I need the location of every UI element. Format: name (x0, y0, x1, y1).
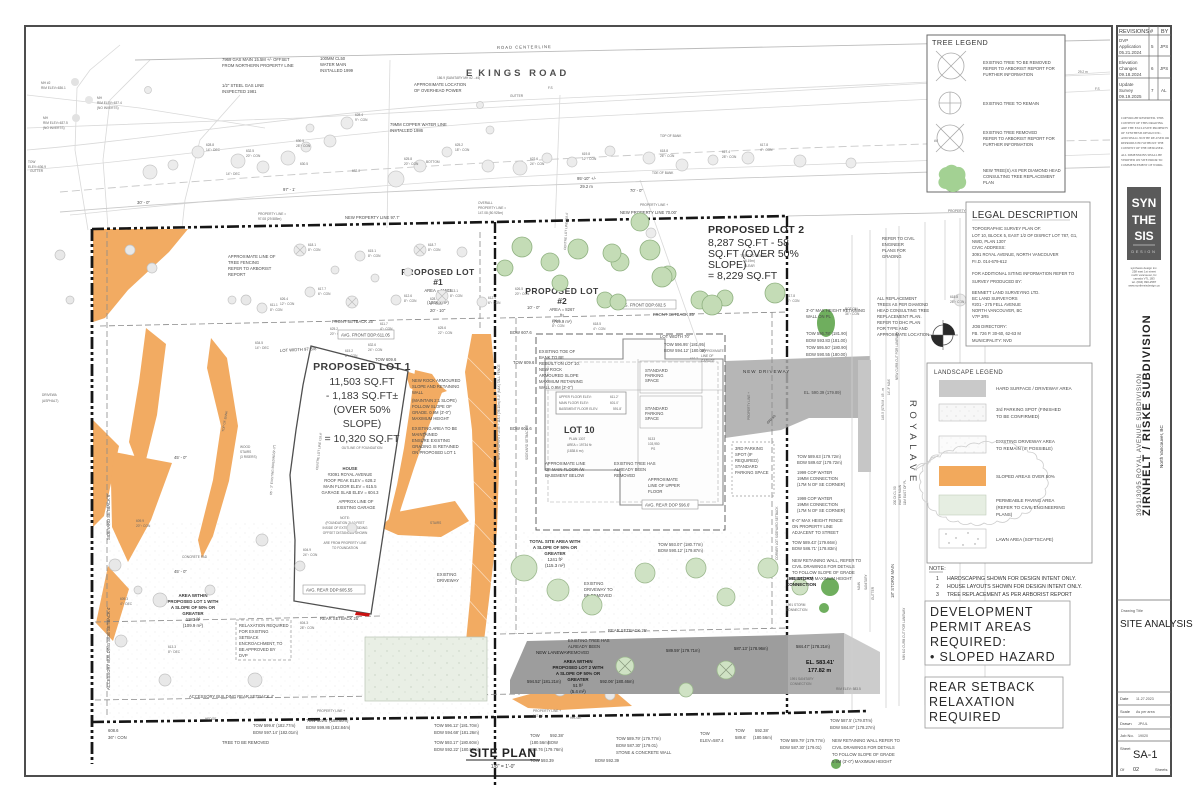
svg-text:GUTTER: GUTTER (30, 169, 44, 173)
svg-text:6"↑ CON: 6"↑ CON (488, 301, 501, 305)
svg-text:A SLOPE OF 50% OR: A SLOPE OF 50% OR (556, 671, 601, 676)
svg-text:618.1: 618.1 (308, 243, 316, 247)
svg-text:VERIFIED ON SITE PRIOR TO: VERIFIED ON SITE PRIOR TO (1121, 158, 1163, 162)
svg-text:8"↑ CON: 8"↑ CON (308, 248, 321, 252)
svg-text:ENSURE EXISTING: ENSURE EXISTING (412, 438, 450, 443)
svg-text:1/8" = 1'-0": 1/8" = 1'-0" (491, 764, 516, 770)
svg-text:186.9 (SANITARY MH #2 - #4): 186.9 (SANITARY MH #2 - #4) (437, 76, 480, 80)
svg-text:• SLOPED HAZARD: • SLOPED HAZARD (930, 650, 1055, 664)
svg-text:GUTTER: GUTTER (510, 94, 524, 98)
svg-text:12"↑ CON: 12"↑ CON (582, 157, 597, 161)
svg-text:LOT 10: LOT 10 (564, 425, 595, 435)
svg-text:MIN 6-0 CURB CUT FOR LANEWAY: MIN 6-0 CURB CUT FOR LANEWAY (902, 607, 906, 660)
svg-text:MAXIMUM RETAINING: MAXIMUM RETAINING (539, 379, 583, 384)
svg-text:APPROXIMATE LOCATION: APPROXIMATE LOCATION (877, 332, 929, 337)
svg-text:REMOVED: REMOVED (568, 650, 589, 655)
svg-text:A SLOPE OF 50% OR: A SLOPE OF 50% OR (171, 605, 216, 610)
svg-text:3091 ROYAL AVENUE, NORTH VANCO: 3091 ROYAL AVENUE, NORTH VANCOUVER (972, 252, 1059, 257)
svg-text:TREES AS PER DIAMOND: TREES AS PER DIAMOND (877, 302, 928, 307)
svg-text:0.9M (3'-0") MAXIMUM HEIGHT: 0.9M (3'-0") MAXIMUM HEIGHT (832, 759, 892, 764)
svg-text:www.synthesisdesign.ca: www.synthesisdesign.ca (1128, 284, 1160, 288)
svg-text:632.5: 632.5 (246, 149, 254, 153)
svg-text:36"↑ CON: 36"↑ CON (108, 735, 127, 740)
svg-text:AL: AL (1161, 88, 1167, 93)
svg-text:634.5: 634.5 (255, 341, 263, 345)
svg-text:19MM CONNECTION: 19MM CONNECTION (797, 476, 838, 481)
svg-text:14'-3" MAX: 14'-3" MAX (887, 378, 891, 395)
svg-text:14"↑ DEC: 14"↑ DEC (226, 172, 241, 176)
svg-text:1: 1 (936, 576, 939, 582)
svg-text:587.13' (178.96m): 587.13' (178.96m) (734, 646, 768, 651)
svg-text:1/2" STEEL GAS LINE: 1/2" STEEL GAS LINE (222, 83, 264, 88)
svg-text:Drawing Title: Drawing Title (1121, 609, 1143, 613)
svg-text:SIDEYARD SETBACK 6': SIDEYARD SETBACK 6' (525, 425, 529, 460)
svg-text:SA-1: SA-1 (1133, 749, 1157, 761)
svg-text:618.5: 618.5 (593, 322, 601, 326)
svg-text:CIVIC ADDRESS:: CIVIC ADDRESS: (972, 245, 1006, 250)
svg-text:NEW PROPERTY LINE + 118.4 (36.: NEW PROPERTY LINE + 118.4 (36.10m) 8'-0"… (497, 364, 501, 460)
svg-text:0.9M (3'-0") MAXIMUM HEIGHT: 0.9M (3'-0") MAXIMUM HEIGHT (792, 576, 852, 581)
svg-text:618.7: 618.7 (428, 243, 436, 247)
svg-text:PLAN 1307: PLAN 1307 (569, 437, 586, 441)
svg-text:REBUILT ON LOT 10.: REBUILT ON LOT 10. (539, 361, 580, 366)
svg-text:TOW: TOW (28, 160, 35, 164)
svg-text:TOW 602.3' (183.60m): TOW 602.3' (183.60m) (306, 718, 349, 723)
svg-text:8"↑ CON: 8"↑ CON (270, 308, 283, 312)
svg-text:(OVER 50%: (OVER 50% (333, 404, 390, 416)
svg-text:30' - 0": 30' - 0" (137, 200, 151, 205)
svg-text:- 1,183 SQ.FT±: - 1,183 SQ.FT± (326, 390, 399, 402)
svg-text:WATER MAIN: WATER MAIN (320, 62, 346, 67)
svg-text:DRIVEWAY TO: DRIVEWAY TO (584, 587, 613, 592)
svg-text:HARD SURFACE / DRIVEWAY AREA: HARD SURFACE / DRIVEWAY AREA (996, 386, 1072, 391)
svg-text:MAIN FLOOR ELEV:: MAIN FLOOR ELEV: (559, 401, 589, 405)
svg-text:19020: 19020 (1138, 734, 1148, 738)
svg-text:APPROXIMATE LOCATION: APPROXIMATE LOCATION (414, 82, 466, 87)
svg-text:TREE REPLACEMENT AS PER ARBORI: TREE REPLACEMENT AS PER ARBORIST REPORT (947, 592, 1073, 598)
svg-text:Update: Update (1119, 82, 1134, 87)
svg-text:BOW 592.39: BOW 592.39 (595, 758, 620, 763)
svg-text:(5.4 m²): (5.4 m²) (570, 689, 586, 694)
svg-text:ACCESSORY BUILDING SIDE SETBAC: ACCESSORY BUILDING SIDE SETBACK 4' (106, 607, 111, 690)
svg-text:NOTE:: NOTE: (929, 566, 946, 572)
svg-text:SETBACK: SETBACK (239, 635, 259, 640)
svg-text:STAIRS: STAIRS (430, 521, 441, 525)
svg-text:8"↑ CON: 8"↑ CON (368, 254, 381, 258)
svg-text:BOW 589.63' (179.72m): BOW 589.63' (179.72m) (797, 460, 843, 465)
svg-text:8"↑ CON: 8"↑ CON (450, 294, 463, 298)
svg-text:22"↑ CON: 22"↑ CON (438, 331, 453, 335)
svg-text:REMOVED: REMOVED (614, 473, 635, 478)
svg-text:NEW PROPERTY LINE 97.7': NEW PROPERTY LINE 97.7' (345, 215, 400, 220)
svg-text:CONNECTION: CONNECTION (786, 582, 816, 587)
svg-text:EXISTING DRIVEWAY AREA: EXISTING DRIVEWAY AREA (996, 439, 1055, 444)
svg-text:SPACE: SPACE (645, 378, 659, 383)
svg-text:609.3: 609.3 (120, 597, 128, 601)
svg-text:DVP: DVP (1119, 38, 1128, 43)
svg-text:FOR EXISTING: FOR EXISTING (239, 629, 269, 634)
svg-text:STAIRS: STAIRS (240, 450, 251, 454)
svg-text:INSTALLED 1999: INSTALLED 1999 (320, 68, 354, 73)
svg-text:617.4: 617.4 (722, 150, 730, 154)
svg-text:608.6: 608.6 (108, 728, 119, 733)
svg-text:AREA = 19734 ft²: AREA = 19734 ft² (567, 443, 592, 447)
svg-text:EXISTING TREE TO REMAIN: EXISTING TREE TO REMAIN (983, 101, 1039, 106)
svg-text:625.8: 625.8 (404, 157, 412, 161)
svg-text:REAR SETBACK 25': REAR SETBACK 25' (320, 616, 359, 621)
svg-text:NEW RETAINING WALL REFER TO: NEW RETAINING WALL REFER TO (832, 738, 901, 743)
svg-text:SIS: SIS (1134, 229, 1153, 243)
svg-text:97' - 1': 97' - 1' (283, 187, 296, 192)
svg-text:4"↑ DEC: 4"↑ DEC (120, 602, 133, 606)
svg-text:TREE LEGEND: TREE LEGEND (932, 38, 988, 47)
svg-text:EXISTING TREE TO BE REMOVED: EXISTING TREE TO BE REMOVED (983, 60, 1051, 65)
svg-text:70' - 0": 70' - 0" (630, 188, 644, 193)
svg-text:26"↑ CON: 26"↑ CON (660, 154, 675, 158)
svg-text:WALL: WALL (412, 390, 424, 395)
svg-text:PROPOSED LOT 2 WITH: PROPOSED LOT 2 WITH (553, 665, 604, 670)
svg-text:8"↑ CON: 8"↑ CON (428, 248, 441, 252)
svg-text:RIM ELEV=636.1: RIM ELEV=636.1 (41, 86, 66, 90)
svg-text:NEW TREE(S) AS PER DIAMOND HEA: NEW TREE(S) AS PER DIAMOND HEAD (983, 168, 1061, 173)
svg-text:PLAN: PLAN (983, 180, 994, 185)
svg-text:BOW 590.12' (179.87m): BOW 590.12' (179.87m) (658, 548, 704, 553)
svg-text:PERMEABLE PAVING AREA: PERMEABLE PAVING AREA (996, 498, 1054, 503)
svg-text:HEAD CONSULTING TREE: HEAD CONSULTING TREE (877, 308, 929, 313)
svg-text:CONSULTING TREE REPLACEMENT: CONSULTING TREE REPLACEMENT (983, 174, 1055, 179)
svg-text:BASEMENT BELOW: BASEMENT BELOW (545, 473, 584, 478)
svg-text:SLOPE): SLOPE) (343, 418, 382, 430)
svg-text:EL. 583.41': EL. 583.41' (806, 660, 835, 666)
svg-text:REPRODUCED WITHOUT THE: REPRODUCED WITHOUT THE (1121, 141, 1164, 145)
svg-text:1999 COP WATER: 1999 COP WATER (797, 470, 832, 475)
svg-text:(115.3 m²): (115.3 m²) (545, 563, 565, 568)
svg-text:F.S: F.S (548, 86, 553, 90)
svg-text:613.1: 613.1 (450, 289, 458, 293)
svg-text:HEDGE: HEDGE (205, 717, 216, 721)
svg-text:OFFSET DISTANCES SHOWN: OFFSET DISTANCES SHOWN (323, 531, 368, 535)
svg-text:630.5: 630.5 (296, 139, 304, 143)
svg-text:SITE PLAN: SITE PLAN (469, 746, 536, 760)
svg-text:STONE & CONCRETE WALL: STONE & CONCRETE WALL (616, 750, 672, 755)
svg-text:COPYRIGHT RESERVED. THIS: COPYRIGHT RESERVED. THIS (1121, 116, 1164, 120)
svg-text:JP/UL: JP/UL (1138, 722, 1148, 726)
svg-text:1991 SANITARY: 1991 SANITARY (790, 677, 814, 681)
svg-text:TOW 589.63 (179.72m): TOW 589.63 (179.72m) (797, 454, 842, 459)
svg-text:MH: MH (43, 116, 49, 120)
svg-text:CONTENT OF THIS DRAWING: CONTENT OF THIS DRAWING (1121, 121, 1164, 125)
svg-text:601.0': 601.0' (610, 401, 619, 405)
svg-text:589.59' (179.71m): 589.59' (179.71m) (666, 648, 700, 653)
svg-text:584.47' (178.21m): 584.47' (178.21m) (796, 644, 830, 649)
svg-text:CORNER LOT SIDEYARD SETBACK: CORNER LOT SIDEYARD SETBACK (775, 506, 779, 560)
svg-text:29.2 m: 29.2 m (1078, 70, 1088, 74)
svg-text:GREATER: GREATER (544, 551, 566, 556)
svg-text:611.2': 611.2' (610, 395, 619, 399)
svg-text:MAINTAINED: MAINTAINED (412, 432, 438, 437)
svg-text:6"↑ CON: 6"↑ CON (318, 292, 331, 296)
svg-text:4"↑ CON: 4"↑ CON (787, 299, 800, 303)
svg-text:THE: THE (1132, 213, 1156, 227)
svg-text:INSPECTED 1981: INSPECTED 1981 (222, 89, 257, 94)
svg-text:4"↑ CON: 4"↑ CON (593, 327, 606, 331)
svg-text:591.8': 591.8' (613, 407, 622, 411)
svg-text:AND SHALL NOT BE RE-USED OR: AND SHALL NOT BE RE-USED OR (1121, 136, 1170, 140)
svg-text:29.2 m: 29.2 m (580, 184, 593, 189)
svg-text:AREA WITHIN: AREA WITHIN (178, 593, 207, 598)
svg-text:REFER TO DHC PLAN: REFER TO DHC PLAN (877, 320, 920, 325)
svg-text:CONSENT OF THE DESIGNER.: CONSENT OF THE DESIGNER. (1121, 146, 1164, 150)
svg-text:SYN: SYN (1132, 196, 1157, 210)
svg-text:609.9: 609.9 (136, 519, 144, 523)
svg-text:CIVIL DRAWINGS FOR DETAILS: CIVIL DRAWINGS FOR DETAILS (792, 564, 855, 569)
svg-text:REQUIRED: REQUIRED (929, 710, 1001, 724)
svg-text:WOOD: WOOD (240, 445, 251, 449)
svg-text:618.8: 618.8 (950, 295, 958, 299)
svg-text:24"↑ CON: 24"↑ CON (530, 162, 545, 166)
svg-text:BOW 594.12' (180.09): BOW 594.12' (180.09) (664, 348, 706, 353)
svg-text:REVISIONS: REVISIONS (1119, 29, 1149, 35)
svg-text:103,950: 103,950 (648, 442, 660, 446)
svg-text:EXISTING TREE REMOVED: EXISTING TREE REMOVED (983, 130, 1037, 135)
svg-text:LANDSCAPE LEGEND: LANDSCAPE LEGEND (934, 370, 1003, 376)
svg-text:BOTTOM: BOTTOM (426, 160, 440, 164)
svg-text:SURVEY PRODUCED BY:: SURVEY PRODUCED BY: (972, 279, 1022, 284)
svg-text:TOW 609.6: TOW 609.6 (513, 360, 535, 365)
svg-text:ft²: ft² (560, 313, 564, 318)
svg-text:= 8,229 SQ.FT: = 8,229 SQ.FT (708, 270, 778, 282)
svg-text:ALL REPLACEMENT: ALL REPLACEMENT (877, 296, 917, 301)
svg-text:TOW 596.95' (181.95): TOW 596.95' (181.95) (664, 342, 706, 347)
svg-text:625.6: 625.6 (438, 326, 446, 330)
svg-text:PLANS): PLANS) (996, 512, 1013, 517)
svg-text:TO FOLLOW SLOPE OF GRADE: TO FOLLOW SLOPE OF GRADE (792, 570, 855, 575)
svg-text:TOW: TOW (700, 731, 710, 736)
svg-text:As per area: As per area (1136, 710, 1155, 714)
svg-text:COMMENCEMENT OF WORK.: COMMENCEMENT OF WORK. (1121, 163, 1163, 167)
svg-text:Changes: Changes (1119, 66, 1138, 71)
svg-text:ON PROPERTY LINE: ON PROPERTY LINE (792, 524, 833, 529)
svg-text:TO FOLLOW SLOPE OF GRADE: TO FOLLOW SLOPE OF GRADE (832, 752, 895, 757)
svg-text:97.08 (29.585m): 97.08 (29.585m) (258, 217, 281, 221)
svg-text:ROAD CENTERLINE: ROAD CENTERLINE (497, 44, 552, 50)
svg-text:TOW 593.17' (180.60m): TOW 593.17' (180.60m) (434, 740, 479, 745)
svg-text:EXISTING GARAGE: EXISTING GARAGE (337, 505, 376, 510)
svg-text:EXISTING TREE HAS: EXISTING TREE HAS (568, 638, 610, 643)
svg-text:#1: #1 (433, 277, 443, 287)
svg-text:BY: BY (1161, 29, 1169, 35)
svg-text:20"↑ CON: 20"↑ CON (246, 154, 261, 158)
svg-text:CONNECTION: CONNECTION (786, 608, 808, 612)
svg-text:28"↑ CON: 28"↑ CON (950, 300, 965, 304)
svg-text:28"↑ CON: 28"↑ CON (300, 626, 315, 630)
svg-text:PROPERTY LINE =: PROPERTY LINE = (258, 212, 286, 216)
svg-text:RIM ELEV=583.5: RIM ELEV=583.5 (836, 687, 861, 691)
svg-text:PROPERTY LINE =: PROPERTY LINE = (478, 206, 506, 210)
svg-text:REFER TO ARBORIST: REFER TO ARBORIST (228, 266, 272, 271)
svg-text:626.4: 626.4 (280, 297, 288, 301)
svg-text:INSTALLED 1986: INSTALLED 1986 (390, 128, 424, 133)
svg-text:GARAGE SLAB ELEV = 604.3: GARAGE SLAB ELEV = 604.3 (322, 490, 380, 495)
svg-text:EXISTING: EXISTING (437, 572, 457, 577)
svg-text:FRONT SETBACK 25': FRONT SETBACK 25' (653, 312, 695, 317)
svg-text:05.21.2024: 05.21.2024 (1119, 50, 1142, 55)
svg-text:(ASPHALT): (ASPHALT) (42, 399, 58, 403)
svg-text:625.2: 625.2 (330, 327, 338, 331)
svg-text:HEDGE: HEDGE (570, 716, 581, 720)
svg-text:589.6': 589.6' (735, 735, 746, 740)
svg-text:FOR TYPE AND: FOR TYPE AND (877, 326, 908, 331)
svg-text:TOW 599.6' (182.77m): TOW 599.6' (182.77m) (253, 723, 296, 728)
svg-text:TOW 589.43' (179.66m): TOW 589.43' (179.66m) (792, 540, 837, 545)
svg-text:BOW 594.68' (181.26m): BOW 594.68' (181.26m) (434, 730, 480, 735)
svg-text:TOW 596.78' (181.90): TOW 596.78' (181.90) (806, 331, 848, 336)
svg-text:(109.9 m²): (109.9 m²) (183, 623, 204, 628)
svg-text:20"↑ CON: 20"↑ CON (136, 524, 151, 528)
svg-text:LOT WIDTH 70': LOT WIDTH 70' (660, 334, 690, 339)
svg-text:ALREADY BEEN: ALREADY BEEN (568, 644, 600, 649)
svg-text:BASEMENT FLOOR ELEV:: BASEMENT FLOOR ELEV: (559, 407, 598, 411)
svg-text:615.2: 615.2 (345, 349, 353, 353)
svg-text:ROOF PEAK ELEV = 628.2: ROOF PEAK ELEV = 628.2 (324, 478, 376, 483)
svg-text:NEW CURB CUT FOR LANEWAY: NEW CURB CUT FOR LANEWAY (895, 331, 899, 380)
svg-text:625.2: 625.2 (455, 143, 463, 147)
svg-text:(17M N OF SE CORNER): (17M N OF SE CORNER) (797, 482, 846, 487)
svg-text:P.I.D. 014-679-612: P.I.D. 014-679-612 (972, 259, 1008, 264)
svg-text:APPROXIMATE LINE: APPROXIMATE LINE (545, 461, 586, 466)
svg-text:JPS: JPS (1160, 44, 1168, 49)
svg-text:(1838.6 m²): (1838.6 m²) (567, 449, 583, 453)
svg-text:604.3: 604.3 (300, 621, 308, 625)
svg-text:ARE THE EXCLUSIVE PROPERTY: ARE THE EXCLUSIVE PROPERTY (1121, 126, 1169, 130)
svg-text:594.52' (181.21m): 594.52' (181.21m) (527, 679, 561, 684)
svg-text:147.14: 147.14 (533, 714, 543, 718)
svg-text:FURTHER INFORMATION: FURTHER INFORMATION (983, 142, 1033, 147)
svg-text:(MAINTAIN 2:1 SLOPE): (MAINTAIN 2:1 SLOPE) (412, 398, 457, 403)
svg-text:ELEV=587.4: ELEV=587.4 (700, 738, 724, 743)
svg-text:145.5 (STM M - #5 - m: 145.5 (STM M - #5 - m (881, 388, 885, 420)
svg-text:20"↑ CON: 20"↑ CON (404, 162, 419, 166)
svg-text:TOW 593.07' (180.77m): TOW 593.07' (180.77m) (658, 542, 703, 547)
svg-text:1183 ft²: 1183 ft² (186, 617, 201, 622)
svg-text:ARE FROM PROPERTY LINE: ARE FROM PROPERTY LINE (323, 541, 366, 545)
svg-text:REFER TO CIVIL: REFER TO CIVIL (882, 236, 915, 241)
svg-text:EL. 590.39 (179.89): EL. 590.39 (179.89) (804, 390, 842, 395)
svg-text:HARDSCAPING SHOWN FOR DESIGN I: HARDSCAPING SHOWN FOR DESIGN INTENT ONLY… (947, 576, 1076, 582)
svg-text:PLANS FOR: PLANS FOR (882, 248, 906, 253)
svg-text:Sheets: Sheets (1155, 767, 1167, 772)
svg-text:TOW 589.79' (179.77m): TOW 589.79' (179.77m) (780, 738, 825, 743)
svg-text:(NO INVERTS): (NO INVERTS) (43, 126, 65, 130)
svg-text:A SLOPE OF 50% OR: A SLOPE OF 50% OR (533, 545, 578, 550)
svg-text:TOW 609.6: TOW 609.6 (375, 357, 397, 362)
svg-text:MAIN: MAIN (857, 581, 861, 590)
svg-text:TREE TO BE REMOVED: TREE TO BE REMOVED (222, 740, 269, 745)
svg-text:NEW PROPERTY LINE 70.00': NEW PROPERTY LINE 70.00' (620, 210, 677, 215)
svg-text:626.5: 626.5 (515, 287, 523, 291)
svg-text:3: 3 (936, 592, 939, 598)
svg-text:8"↑ CON: 8"↑ CON (552, 324, 565, 328)
svg-text:FURTHER INFORMATION: FURTHER INFORMATION (983, 72, 1033, 77)
svg-text:617.7: 617.7 (318, 287, 326, 291)
svg-text:NWD, PLAN 1307: NWD, PLAN 1307 (972, 239, 1006, 244)
svg-text:622.6: 622.6 (530, 157, 538, 161)
svg-text:1991 STORM: 1991 STORM (786, 603, 806, 607)
svg-text:RELAXATION REQUIRED: RELAXATION REQUIRED (239, 623, 288, 628)
svg-text:RELAXATION: RELAXATION (929, 695, 1015, 709)
svg-text:11M EAST OF PL: 11M EAST OF PL (903, 480, 907, 505)
svg-text:HOUSE LAYOUTS SHOWN FOR DESIGN: HOUSE LAYOUTS SHOWN FOR DESIGN INTENT ON… (947, 584, 1082, 590)
svg-text:TOW: TOW (735, 728, 745, 733)
svg-text:LINE OF: LINE OF (701, 354, 713, 358)
svg-text:INSIDE OF EXTERIOR SIDING: INSIDE OF EXTERIOR SIDING (323, 526, 369, 530)
svg-text:SANITARY: SANITARY (864, 573, 868, 590)
svg-text:4"↑ CON: 4"↑ CON (380, 327, 393, 331)
svg-text:REQUIRED): REQUIRED) (735, 458, 759, 463)
svg-text:177.82 m: 177.82 m (808, 668, 831, 674)
svg-text:TOW 596.12' (181.70m): TOW 596.12' (181.70m) (434, 723, 479, 728)
svg-text:1999 COP WATER: 1999 COP WATER (797, 496, 832, 501)
svg-text:V7P 3R5: V7P 3R5 (972, 314, 989, 319)
svg-text:MUNICIPALITY: NVD: MUNICIPALITY: NVD (972, 338, 1012, 343)
svg-text:JPS: JPS (1160, 66, 1168, 71)
svg-text:FOR ADDITIONAL SITING INFORMAT: FOR ADDITIONAL SITING INFORMATION REFER … (972, 271, 1075, 276)
svg-text:BOW 597.14' (182.01m): BOW 597.14' (182.01m) (253, 730, 299, 735)
svg-text:TOW: TOW (530, 733, 540, 738)
svg-text:NEW DRIVEWAY: NEW DRIVEWAY (743, 369, 790, 374)
svg-text:618.8: 618.8 (660, 149, 668, 153)
svg-text:STANDARD: STANDARD (735, 464, 758, 469)
svg-text:AREA WITHIN: AREA WITHIN (563, 659, 592, 664)
svg-text:18" STORM MAIN: 18" STORM MAIN (890, 564, 895, 598)
svg-text:(REFER TO CIVIL ENGINEERING: (REFER TO CIVIL ENGINEERING (996, 505, 1066, 510)
svg-text:E K I N G S R O A D: E K I N G S R O A D (466, 68, 566, 79)
svg-text:SPOT (IF: SPOT (IF (735, 452, 753, 457)
svg-text:10' - 0": 10' - 0" (527, 305, 541, 310)
svg-text:MH #2: MH #2 (41, 81, 51, 85)
svg-text:628.8: 628.8 (206, 143, 214, 147)
svg-text:REQUIRED:: REQUIRED: (930, 635, 1007, 649)
svg-text:ALL DIMENSIONS SHALL BE: ALL DIMENSIONS SHALL BE (1121, 153, 1162, 157)
svg-text:8"↑ DEC: 8"↑ DEC (168, 650, 181, 654)
svg-text:ACCESSORY BUILDING REAR SETBAC: ACCESSORY BUILDING REAR SETBACK 4' (189, 694, 274, 699)
svg-text:200 DI CL 50: 200 DI CL 50 (893, 486, 897, 505)
svg-text:ENCROACHMENT, TO: ENCROACHMENT, TO (239, 641, 283, 646)
svg-text:611.7: 611.7 (380, 322, 388, 326)
svg-text:NORTH VANCOUVER, BC: NORTH VANCOUVER, BC (972, 308, 1022, 313)
svg-text:TO REMAIN (IF POSSIBLE): TO REMAIN (IF POSSIBLE) (996, 446, 1053, 451)
svg-text:09.18.2024: 09.18.2024 (1119, 72, 1142, 77)
svg-text:SITE ANALYSIS: SITE ANALYSIS (1120, 619, 1193, 630)
svg-text:HOUSE: HOUSE (343, 466, 358, 471)
svg-text:Sheet: Sheet (1120, 746, 1131, 751)
svg-text:REAR SETBACK 25': REAR SETBACK 25' (608, 628, 647, 633)
svg-text:617.8: 617.8 (760, 143, 768, 147)
svg-text:Drawn: Drawn (1120, 721, 1132, 726)
svg-text:F.S: F.S (1095, 87, 1100, 91)
svg-text:592.38': 592.38' (755, 728, 769, 733)
svg-text:FB. 726 P.: FB. 726 P. 30-60, 62-63 M (972, 331, 1021, 336)
svg-text:BANK TO BE: BANK TO BE (539, 355, 564, 360)
svg-text:TOTAL SITE AREA WITH: TOTAL SITE AREA WITH (530, 539, 581, 544)
svg-text:GRADING IS RETAINED: GRADING IS RETAINED (412, 444, 459, 449)
svg-text:AVG. REAR DDP:605.55: AVG. REAR DDP:605.55 (306, 588, 353, 593)
svg-text:TOPOGRAPHIC SURVEY PLAN OF:: TOPOGRAPHIC SURVEY PLAN OF: (972, 226, 1041, 231)
svg-text:CIVIL DRAWINGS FOR DETAILS: CIVIL DRAWINGS FOR DETAILS (832, 745, 895, 750)
svg-text:NEW ROCK ARMOURED: NEW ROCK ARMOURED (412, 378, 460, 383)
svg-text:LEGAL DESCRIPTION: LEGAL DESCRIPTION (972, 210, 1078, 221)
svg-text:#201 - 275 FELL AVENUE: #201 - 275 FELL AVENUE (972, 302, 1021, 307)
